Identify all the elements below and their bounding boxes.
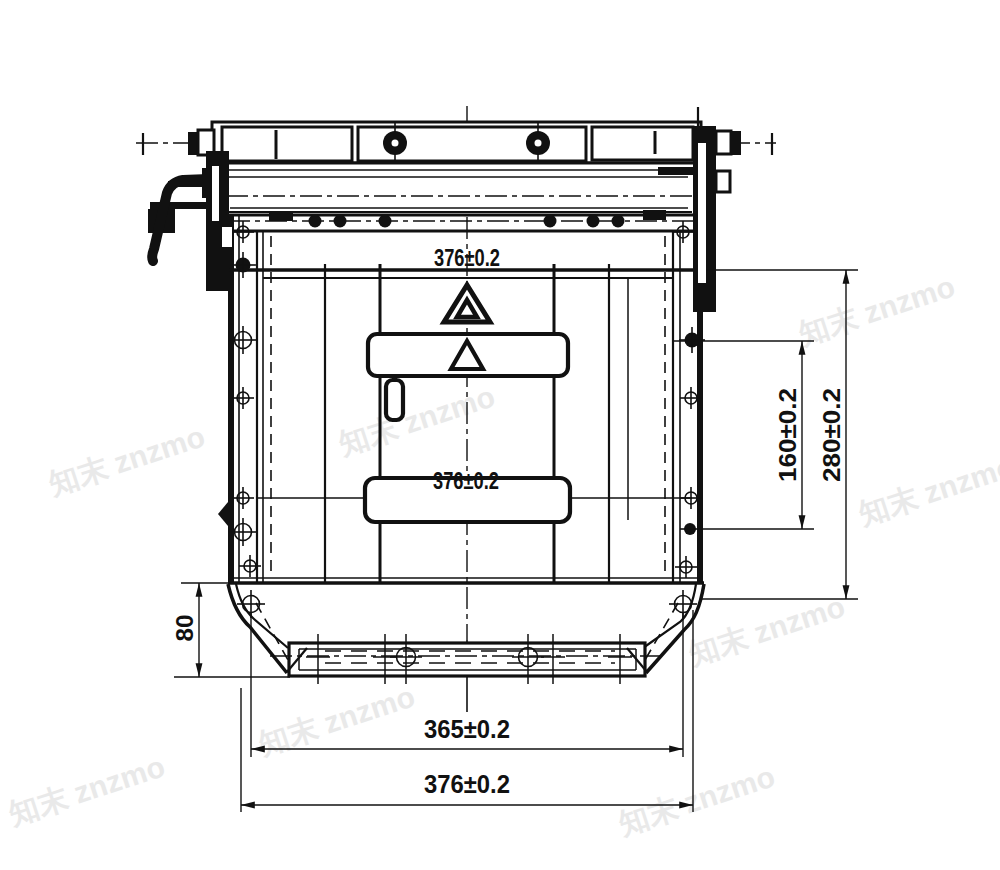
- slot-opening: [386, 380, 403, 420]
- rail-block-left: [222, 127, 352, 161]
- rail-bolt-icon: [383, 131, 407, 155]
- rail-lug-right-lower: [716, 171, 730, 192]
- dim-bottom-overall-label: 376±0.2: [424, 770, 510, 798]
- rail-lug-right-upper: [716, 131, 731, 154]
- right-bracket: [693, 126, 716, 312]
- drawing-canvas: 知末 znzmo 知末 znzmo 知末 znzmo 知末 znzmo 知末 z…: [0, 0, 1000, 870]
- rivet-icon: [334, 215, 347, 228]
- rivet-icon: [309, 215, 322, 228]
- rivet-icon: [612, 215, 625, 228]
- right-column-slot: [698, 143, 706, 283]
- rivet-icon: [587, 215, 600, 228]
- rivet-icon: [379, 215, 392, 228]
- left-column-slot: [212, 166, 219, 221]
- rail-end-cap-right: [731, 131, 741, 155]
- plate-outer: [289, 643, 645, 676]
- hatch-block-right: [643, 210, 666, 220]
- dim-corner-height-label: 80: [172, 615, 198, 642]
- left-column-slot: [222, 227, 232, 247]
- rivet-icon: [544, 215, 557, 228]
- technical-drawing: 知末 znzmo 知末 znzmo 知末 znzmo 知末 znzmo 知末 z…: [0, 0, 1000, 870]
- bottom-mounting-plate: [270, 634, 662, 684]
- dim-bottom-bolt-span-label: 365±0.2: [424, 715, 510, 743]
- rail-block-right: [592, 127, 693, 160]
- rail-bolt-icon: [526, 131, 550, 155]
- dim-side-overall-height-label: 280±0.2: [819, 388, 845, 482]
- dim-panel-width-label: 376±0.2: [433, 468, 499, 494]
- hatch-block-left: [269, 211, 293, 221]
- dim-side-inner-height-label: 160±0.2: [775, 388, 801, 482]
- right-tab: [658, 167, 694, 175]
- dim-top-width-label: 376±0.2: [434, 245, 500, 271]
